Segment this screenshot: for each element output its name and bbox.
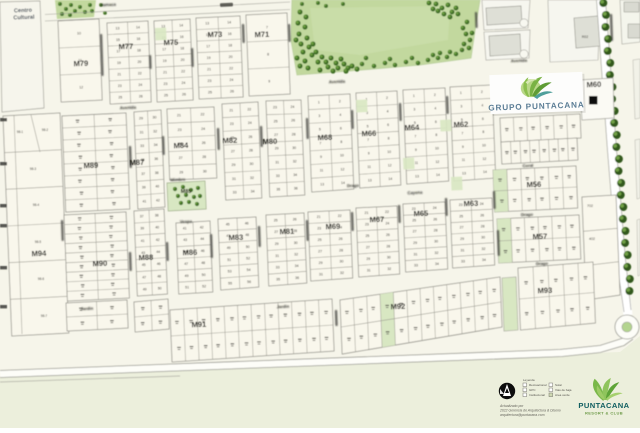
svg-text:29: 29 [179, 170, 183, 174]
svg-text:53: 53 [228, 270, 232, 274]
svg-text:21: 21 [163, 71, 167, 75]
svg-text:14: 14 [436, 173, 440, 177]
svg-text:6: 6 [340, 127, 342, 131]
svg-text:GPC: GPC [529, 388, 536, 392]
svg-text:Coral: Coral [522, 163, 533, 168]
svg-text:24: 24 [182, 81, 186, 85]
svg-text:18: 18 [137, 48, 141, 52]
svg-text:24: 24 [248, 121, 252, 125]
svg-text:25: 25 [365, 234, 369, 238]
svg-text:M80: M80 [262, 137, 277, 147]
svg-text:26: 26 [139, 95, 143, 99]
svg-text:27: 27 [231, 150, 235, 154]
svg-text:4: 4 [339, 113, 341, 117]
svg-text:32: 32 [482, 247, 486, 251]
svg-text:10: 10 [435, 146, 439, 150]
svg-text:9: 9 [320, 155, 322, 159]
svg-text:25: 25 [208, 91, 212, 95]
svg-text:33: 33 [233, 191, 237, 195]
svg-text:7: 7 [414, 134, 416, 138]
svg-text:7: 7 [461, 131, 463, 135]
svg-text:Avenida: Avenida [120, 105, 137, 111]
svg-text:26: 26 [230, 90, 234, 94]
svg-text:42: 42 [156, 199, 160, 203]
svg-text:36: 36 [294, 187, 298, 191]
svg-text:M60: M60 [586, 80, 601, 90]
svg-text:10: 10 [482, 143, 486, 147]
svg-text:55: 55 [228, 281, 232, 285]
svg-text:M57: M57 [532, 232, 547, 242]
svg-text:M63: M63 [463, 199, 478, 209]
svg-text:23: 23 [118, 84, 122, 88]
svg-text:21: 21 [207, 68, 211, 72]
svg-text:402: 402 [589, 237, 595, 241]
svg-text:31: 31 [367, 269, 371, 273]
svg-text:49: 49 [185, 274, 189, 278]
svg-text:24: 24 [433, 206, 437, 210]
svg-text:50: 50 [158, 286, 162, 290]
svg-text:29: 29 [366, 257, 370, 261]
svg-text:6: 6 [387, 123, 389, 127]
svg-text:98-6: 98-6 [38, 277, 45, 281]
svg-text:22: 22 [385, 210, 389, 214]
svg-text:28: 28 [339, 248, 343, 252]
svg-text:4: 4 [481, 104, 483, 108]
svg-text:24: 24 [230, 78, 234, 82]
svg-text:27: 27 [274, 230, 278, 234]
svg-text:8: 8 [267, 53, 269, 57]
svg-text:10: 10 [340, 154, 344, 158]
svg-text:M77: M77 [118, 42, 133, 52]
svg-text:M66: M66 [361, 129, 376, 139]
svg-text:31: 31 [275, 160, 279, 164]
svg-text:98-2: 98-2 [42, 128, 49, 132]
svg-text:24: 24 [480, 202, 484, 206]
svg-text:30: 30 [294, 241, 298, 245]
svg-text:21: 21 [365, 211, 369, 215]
svg-text:14: 14 [483, 170, 487, 174]
svg-text:Actualizado por: Actualizado por [499, 404, 524, 408]
svg-text:54: 54 [247, 268, 251, 272]
svg-text:30: 30 [250, 162, 254, 166]
svg-text:M91: M91 [191, 320, 207, 330]
svg-text:M85: M85 [181, 189, 192, 195]
svg-text:30: 30 [340, 260, 344, 264]
svg-text:Jardin: Jardin [277, 304, 290, 310]
svg-text:11: 11 [320, 169, 324, 173]
svg-text:35: 35 [276, 277, 280, 281]
svg-text:50: 50 [202, 273, 206, 277]
svg-text:M88: M88 [138, 253, 153, 263]
svg-text:22: 22 [181, 70, 185, 74]
svg-text:23: 23 [317, 227, 321, 231]
svg-text:37: 37 [141, 172, 145, 176]
svg-text:3: 3 [318, 114, 320, 118]
svg-text:26: 26 [202, 141, 206, 145]
svg-text:22: 22 [338, 214, 342, 218]
svg-text:25: 25 [412, 218, 416, 222]
svg-text:10: 10 [77, 32, 81, 36]
svg-text:27: 27 [366, 246, 370, 250]
svg-text:Drago: Drago [347, 183, 360, 189]
svg-text:5: 5 [367, 124, 369, 128]
svg-text:38: 38 [155, 214, 159, 218]
svg-text:22: 22 [247, 107, 251, 111]
svg-text:5: 5 [319, 128, 321, 132]
svg-text:46: 46 [201, 249, 205, 253]
svg-text:32: 32 [250, 176, 254, 180]
svg-text:31: 31 [275, 254, 279, 258]
svg-text:Vias de baja: Vias de baja [555, 388, 572, 392]
svg-text:27: 27 [179, 156, 183, 160]
svg-text:8: 8 [482, 130, 484, 134]
svg-text:52: 52 [202, 285, 206, 289]
svg-text:46: 46 [157, 262, 161, 266]
svg-text:22: 22 [138, 72, 142, 76]
svg-text:2: 2 [386, 96, 388, 100]
svg-text:28: 28 [202, 155, 206, 159]
svg-text:21: 21 [177, 114, 181, 118]
svg-text:32: 32 [293, 160, 297, 164]
svg-text:33: 33 [276, 266, 280, 270]
svg-text:25: 25 [118, 96, 122, 100]
svg-text:28: 28 [292, 132, 296, 136]
svg-text:9: 9 [368, 151, 370, 155]
svg-text:M79: M79 [73, 59, 88, 69]
svg-text:40: 40 [155, 226, 159, 230]
svg-text:12: 12 [79, 86, 83, 90]
svg-text:20: 20 [137, 60, 141, 64]
svg-text:33: 33 [140, 144, 144, 148]
svg-text:12: 12 [388, 164, 392, 168]
svg-text:Solar: Solar [555, 383, 562, 387]
svg-text:12: 12 [341, 167, 345, 171]
svg-text:3: 3 [460, 105, 462, 109]
svg-text:19: 19 [117, 61, 121, 65]
svg-text:41: 41 [142, 200, 146, 204]
svg-text:Institucional: Institucional [529, 393, 545, 397]
svg-text:M81: M81 [279, 227, 295, 237]
svg-text:48: 48 [201, 261, 205, 265]
svg-text:24: 24 [201, 127, 205, 131]
svg-text:1: 1 [460, 91, 462, 95]
svg-text:M90: M90 [92, 259, 107, 269]
svg-text:M84: M84 [173, 141, 189, 151]
svg-text:Drago: Drago [536, 261, 549, 267]
svg-text:31: 31 [461, 248, 465, 252]
svg-text:14: 14 [136, 25, 140, 29]
svg-text:M65: M65 [413, 209, 429, 219]
svg-text:Drago: Drago [521, 212, 534, 218]
svg-text:13: 13 [116, 26, 120, 30]
svg-text:11: 11 [367, 165, 371, 169]
svg-text:44: 44 [200, 237, 204, 241]
svg-text:28: 28 [249, 149, 253, 153]
svg-text:36: 36 [154, 157, 158, 161]
svg-text:26: 26 [248, 135, 252, 139]
svg-text:31: 31 [319, 273, 323, 277]
svg-text:23: 23 [459, 203, 463, 207]
svg-text:32: 32 [340, 271, 344, 275]
svg-text:35: 35 [276, 188, 280, 192]
svg-text:M64: M64 [404, 123, 420, 133]
svg-text:6: 6 [482, 117, 484, 121]
svg-text:48: 48 [157, 274, 161, 278]
svg-text:31: 31 [232, 177, 236, 181]
svg-text:13: 13 [205, 21, 209, 25]
svg-text:Centro: Centro [14, 8, 33, 15]
svg-text:28: 28 [481, 225, 485, 229]
svg-text:45: 45 [142, 263, 146, 267]
svg-text:6: 6 [435, 120, 437, 124]
svg-text:30: 30 [153, 115, 157, 119]
svg-text:21: 21 [117, 73, 121, 77]
svg-text:34: 34 [482, 258, 486, 262]
svg-text:29: 29 [413, 241, 417, 245]
svg-text:14: 14 [227, 20, 231, 24]
svg-text:36: 36 [295, 276, 299, 280]
svg-text:9: 9 [415, 148, 417, 152]
svg-text:23: 23 [208, 79, 212, 83]
svg-text:26: 26 [433, 217, 437, 221]
svg-text:12: 12 [435, 160, 439, 164]
svg-text:21: 21 [317, 215, 321, 219]
svg-text:13: 13 [462, 172, 466, 176]
svg-text:19: 19 [207, 56, 211, 60]
svg-text:2022 Gerencia de Arquitectura: 2022 Gerencia de Arquitectura & Diseno [499, 409, 561, 413]
svg-text:56: 56 [247, 280, 251, 284]
svg-text:41: 41 [141, 239, 145, 243]
svg-text:24: 24 [138, 83, 142, 87]
svg-text:18: 18 [228, 43, 232, 47]
svg-text:98-7: 98-7 [41, 314, 48, 318]
svg-text:RESORT & CLUB: RESORT & CLUB [585, 411, 623, 416]
svg-text:31: 31 [140, 130, 144, 134]
svg-text:45: 45 [226, 222, 230, 226]
svg-text:26: 26 [480, 213, 484, 217]
svg-text:8: 8 [340, 140, 342, 144]
svg-text:34: 34 [154, 143, 158, 147]
svg-text:13: 13 [415, 175, 419, 179]
svg-text:37: 37 [140, 215, 144, 219]
svg-text:32: 32 [294, 253, 298, 257]
svg-text:25: 25 [459, 214, 463, 218]
svg-text:29: 29 [232, 163, 236, 167]
svg-text:M69: M69 [325, 222, 340, 232]
svg-text:34: 34 [435, 262, 439, 266]
svg-text:M87: M87 [129, 158, 144, 168]
svg-text:51: 51 [227, 258, 231, 262]
svg-text:23: 23 [178, 128, 182, 132]
svg-text:arquitectura@puntacana.com: arquitectura@puntacana.com [500, 413, 545, 417]
svg-text:39: 39 [140, 227, 144, 231]
svg-text:42: 42 [200, 225, 204, 229]
svg-text:Leyenda: Leyenda [523, 378, 535, 382]
svg-text:21: 21 [229, 108, 233, 112]
svg-text:29: 29 [139, 116, 143, 120]
svg-text:98-1: 98-1 [17, 130, 24, 134]
svg-text:4: 4 [434, 107, 436, 111]
svg-text:44: 44 [156, 250, 160, 254]
svg-text:Area verde: Area verde [555, 393, 570, 397]
svg-text:24: 24 [385, 222, 389, 226]
svg-text:Hamaca: Hamaca [100, 2, 117, 8]
svg-text:24: 24 [291, 105, 295, 109]
svg-text:30: 30 [481, 236, 485, 240]
svg-text:M67: M67 [369, 215, 384, 225]
svg-text:M92: M92 [390, 302, 405, 312]
svg-text:2: 2 [434, 93, 436, 97]
svg-text:41: 41 [183, 226, 187, 230]
svg-text:23: 23 [230, 122, 234, 126]
svg-text:47: 47 [184, 262, 188, 266]
svg-text:40: 40 [155, 185, 159, 189]
svg-text:14: 14 [341, 181, 345, 185]
svg-text:14: 14 [179, 23, 183, 27]
svg-text:98-3: 98-3 [30, 167, 37, 171]
svg-text:13: 13 [320, 182, 324, 186]
svg-text:43: 43 [183, 238, 187, 242]
svg-text:34: 34 [295, 264, 299, 268]
svg-text:26: 26 [386, 233, 390, 237]
svg-text:3: 3 [413, 108, 415, 112]
svg-text:Cultural: Cultural [13, 15, 35, 22]
svg-text:18: 18 [180, 46, 184, 50]
svg-text:30: 30 [292, 146, 296, 150]
svg-text:PUNTACANA: PUNTACANA [578, 401, 629, 410]
svg-text:26: 26 [293, 217, 297, 221]
svg-text:Avenida: Avenida [329, 79, 346, 85]
svg-text:M56: M56 [526, 180, 541, 190]
svg-text:47: 47 [142, 275, 146, 279]
svg-text:28: 28 [434, 229, 438, 233]
svg-text:Mimbre: Mimbre [170, 177, 186, 183]
svg-text:49: 49 [143, 287, 147, 291]
svg-text:38: 38 [155, 171, 159, 175]
svg-text:27: 27 [413, 230, 417, 234]
svg-text:30: 30 [203, 169, 207, 173]
svg-text:10: 10 [387, 150, 391, 154]
svg-text:9: 9 [462, 145, 464, 149]
svg-text:51: 51 [185, 286, 189, 290]
svg-text:28: 28 [386, 244, 390, 248]
svg-text:26: 26 [291, 119, 295, 123]
svg-text:M93: M93 [537, 286, 552, 296]
svg-text:32: 32 [435, 251, 439, 255]
svg-text:17: 17 [206, 44, 210, 48]
svg-text:13: 13 [368, 179, 372, 183]
svg-text:48: 48 [245, 233, 249, 237]
svg-text:23: 23 [273, 106, 277, 110]
svg-text:M73: M73 [207, 30, 222, 40]
svg-text:M94: M94 [31, 249, 47, 259]
svg-text:23: 23 [365, 223, 369, 227]
svg-text:29: 29 [319, 261, 323, 265]
svg-text:Vespa: Vespa [180, 219, 193, 225]
svg-text:4: 4 [387, 110, 389, 114]
svg-text:2: 2 [339, 99, 341, 103]
svg-text:M71: M71 [254, 30, 270, 40]
svg-text:19: 19 [163, 59, 167, 63]
svg-text:14: 14 [388, 177, 392, 181]
svg-text:16: 16 [228, 32, 232, 36]
svg-text:27: 27 [460, 226, 464, 230]
svg-text:1: 1 [413, 94, 415, 98]
svg-text:22: 22 [229, 67, 233, 71]
svg-text:29: 29 [275, 147, 279, 151]
svg-text:M83: M83 [228, 233, 243, 243]
svg-text:25: 25 [164, 94, 168, 98]
svg-text:23: 23 [164, 82, 168, 86]
svg-text:R02: R02 [582, 35, 588, 39]
svg-text:49: 49 [227, 246, 231, 250]
svg-text:12: 12 [482, 157, 486, 161]
svg-text:M62: M62 [453, 120, 468, 130]
svg-text:25: 25 [318, 238, 322, 242]
svg-text:30: 30 [434, 240, 438, 244]
svg-text:26: 26 [182, 93, 186, 97]
svg-text:27: 27 [318, 250, 322, 254]
svg-text:16: 16 [180, 35, 184, 39]
svg-text:39: 39 [142, 186, 146, 190]
svg-text:42: 42 [156, 238, 160, 242]
svg-text:2: 2 [481, 90, 483, 94]
svg-text:52: 52 [246, 257, 250, 261]
svg-text:M68: M68 [317, 133, 332, 143]
svg-text:M86: M86 [182, 248, 197, 258]
svg-text:34: 34 [251, 190, 255, 194]
svg-text:34: 34 [293, 173, 297, 177]
svg-text:22: 22 [201, 113, 205, 117]
svg-text:32: 32 [153, 129, 157, 133]
svg-text:Recreacional: Recreacional [529, 383, 547, 387]
svg-text:50: 50 [246, 245, 250, 249]
svg-text:31: 31 [414, 252, 418, 256]
svg-text:20: 20 [181, 58, 185, 62]
svg-text:29: 29 [460, 237, 464, 241]
svg-text:M82: M82 [222, 136, 237, 146]
svg-text:M75: M75 [163, 38, 179, 48]
svg-text:25: 25 [274, 218, 278, 222]
svg-text:8: 8 [435, 133, 437, 137]
svg-text:30: 30 [387, 256, 391, 260]
svg-text:702: 702 [587, 204, 593, 208]
svg-text:Avenida: Avenida [511, 58, 528, 64]
svg-text:32: 32 [387, 267, 391, 271]
svg-text:Cayena: Cayena [407, 190, 423, 196]
svg-text:17: 17 [162, 47, 166, 51]
svg-text:20: 20 [229, 55, 233, 59]
svg-text:26: 26 [339, 237, 343, 241]
svg-text:98-5: 98-5 [35, 240, 42, 244]
svg-text:1: 1 [318, 100, 320, 104]
svg-text:Jardin: Jardin [81, 306, 94, 312]
svg-text:11: 11 [462, 158, 466, 162]
svg-text:7: 7 [367, 138, 369, 142]
svg-text:16: 16 [136, 37, 140, 41]
svg-text:8: 8 [388, 137, 390, 141]
svg-text:25: 25 [274, 119, 278, 123]
svg-text:33: 33 [414, 264, 418, 268]
svg-text:M89: M89 [83, 161, 98, 171]
svg-text:33: 33 [276, 174, 280, 178]
svg-text:9: 9 [268, 80, 270, 84]
svg-text:33: 33 [461, 260, 465, 264]
svg-text:11: 11 [415, 161, 419, 165]
svg-text:98-4: 98-4 [33, 203, 40, 207]
svg-text:46: 46 [245, 221, 249, 225]
svg-text:29: 29 [275, 242, 279, 246]
